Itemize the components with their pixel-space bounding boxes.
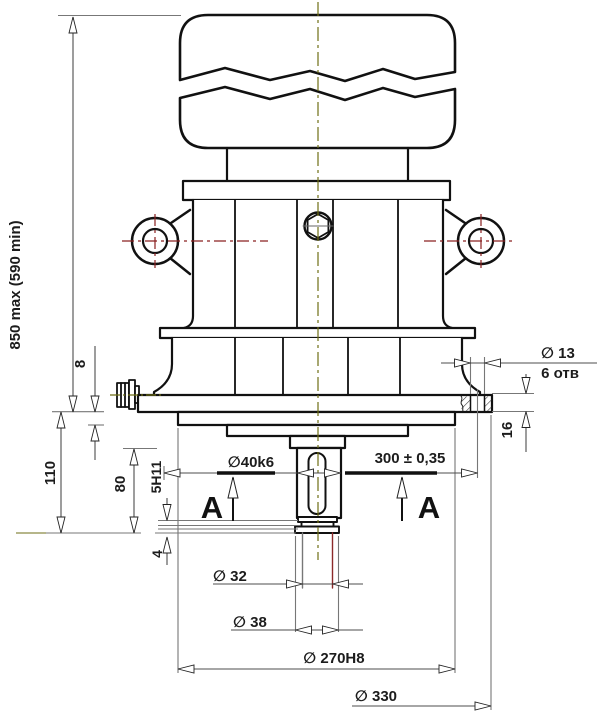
label-hole-count: 6 отв — [541, 365, 579, 382]
label-section-A-right: A — [418, 490, 440, 525]
dim-16 — [522, 374, 530, 452]
label-5H11: 5H11 — [148, 460, 164, 493]
dim-overall — [69, 17, 77, 412]
part-geometry — [117, 15, 504, 588]
spigot-disc-large — [178, 412, 455, 425]
label-110: 110 — [42, 461, 59, 485]
label-section-A-left: A — [201, 490, 223, 525]
label-overall-height: 850 max (590 min) — [7, 220, 24, 349]
label-dia-32: ∅ 32 — [213, 568, 247, 585]
label-4: 4 — [149, 550, 165, 558]
label-80: 80 — [112, 476, 129, 493]
technical-drawing-sheet: 850 max (590 min) 110 80 8 5H11 4 16 ∅40… — [0, 0, 600, 714]
label-8: 8 — [72, 360, 89, 368]
keyway-slot — [309, 453, 326, 514]
label-bolt-circle: 300 ± 0,35 — [375, 450, 446, 467]
label-16: 16 — [499, 422, 516, 439]
label-hole-dia: ∅ 13 — [541, 345, 575, 362]
mounting-flange — [138, 395, 492, 412]
dim-80 — [130, 449, 138, 533]
label-spigot-dia: ∅ 270H8 — [303, 650, 364, 667]
shaft-end-rings — [295, 517, 339, 533]
mounting-ear-right — [446, 210, 504, 274]
label-flange-dia: ∅ 330 — [355, 688, 397, 705]
mounting-ear-left — [132, 210, 190, 274]
lower-housing — [154, 338, 480, 395]
vibration-isolator-drawing: 850 max (590 min) 110 80 8 5H11 4 16 ∅40… — [0, 0, 600, 714]
dim-8 — [91, 346, 99, 460]
top-plate — [183, 181, 450, 200]
label-shaft-dia: ∅40k6 — [228, 454, 274, 471]
label-dia-38: ∅ 38 — [233, 614, 267, 631]
